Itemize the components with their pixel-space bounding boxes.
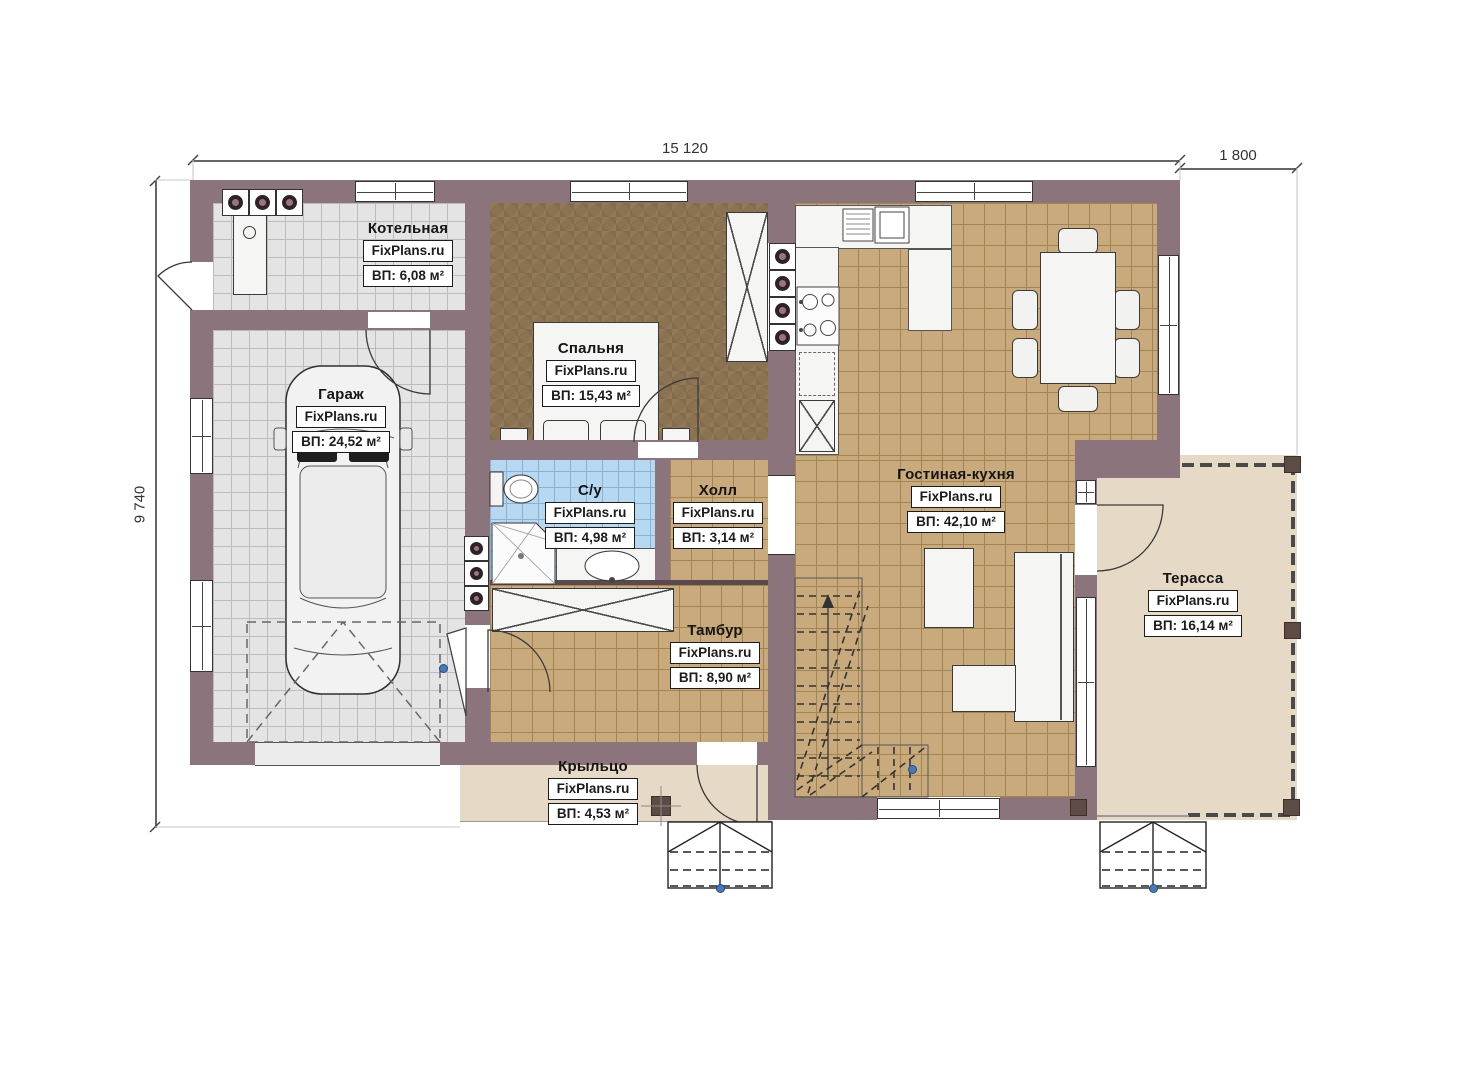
room-area: ВП: 24,52 м² [292, 431, 390, 453]
watermark: FixPlans.ru [546, 360, 637, 382]
room-area: ВП: 6,08 м² [363, 265, 453, 287]
handle-dot [1149, 884, 1158, 893]
room-name: Тамбур [655, 622, 775, 639]
room-label-bathroom: С/у FixPlans.ru ВП: 4,98 м² [530, 482, 650, 549]
room-label-garage: Гараж FixPlans.ru ВП: 24,52 м² [280, 386, 402, 453]
floor-plan: 15 120 1 800 9 740 [0, 0, 1473, 1080]
watermark: FixPlans.ru [673, 502, 764, 524]
watermark: FixPlans.ru [670, 642, 761, 664]
kitchen-sink-icon [843, 207, 909, 243]
watermark: FixPlans.ru [548, 778, 639, 800]
room-area: ВП: 3,14 м² [673, 527, 763, 549]
room-area: ВП: 4,53 м² [548, 803, 638, 825]
room-name: Котельная [347, 220, 469, 237]
handle-dot [716, 884, 725, 893]
stove-icon [797, 287, 839, 345]
watermark: FixPlans.ru [1148, 590, 1239, 612]
entry-steps-icon [1100, 822, 1206, 888]
watermark: FixPlans.ru [363, 240, 454, 262]
room-name: Терасса [1130, 570, 1256, 587]
room-name: Холл [659, 482, 777, 499]
room-area: ВП: 8,90 м² [670, 667, 760, 689]
handle-dot [908, 765, 917, 774]
room-area: ВП: 15,43 м² [542, 385, 640, 407]
room-area: ВП: 42,10 м² [907, 511, 1005, 533]
room-name: С/у [530, 482, 650, 499]
room-label-terrace: Терасса FixPlans.ru ВП: 16,14 м² [1130, 570, 1256, 637]
watermark: FixPlans.ru [911, 486, 1002, 508]
room-name: Крыльцо [532, 758, 654, 775]
room-label-hall: Холл FixPlans.ru ВП: 3,14 м² [659, 482, 777, 549]
watermark: FixPlans.ru [296, 406, 387, 428]
washbasin-icon [585, 551, 639, 583]
room-name: Гостиная-кухня [878, 466, 1034, 483]
room-area: ВП: 16,14 м² [1144, 615, 1242, 637]
room-name: Гараж [280, 386, 402, 403]
handle-dot [439, 664, 448, 673]
watermark: FixPlans.ru [545, 502, 636, 524]
staircase-icon [795, 578, 928, 797]
room-label-bedroom: Спальня FixPlans.ru ВП: 15,43 м² [528, 340, 654, 407]
room-label-living-kitchen: Гостиная-кухня FixPlans.ru ВП: 42,10 м² [878, 466, 1034, 533]
room-label-vestibule: Тамбур FixPlans.ru ВП: 8,90 м² [655, 622, 775, 689]
room-label-boiler: Котельная FixPlans.ru ВП: 6,08 м² [347, 220, 469, 287]
room-area: ВП: 4,98 м² [545, 527, 635, 549]
room-label-porch: Крыльцо FixPlans.ru ВП: 4,53 м² [532, 758, 654, 825]
entry-steps-icon [668, 822, 772, 888]
room-name: Спальня [528, 340, 654, 357]
